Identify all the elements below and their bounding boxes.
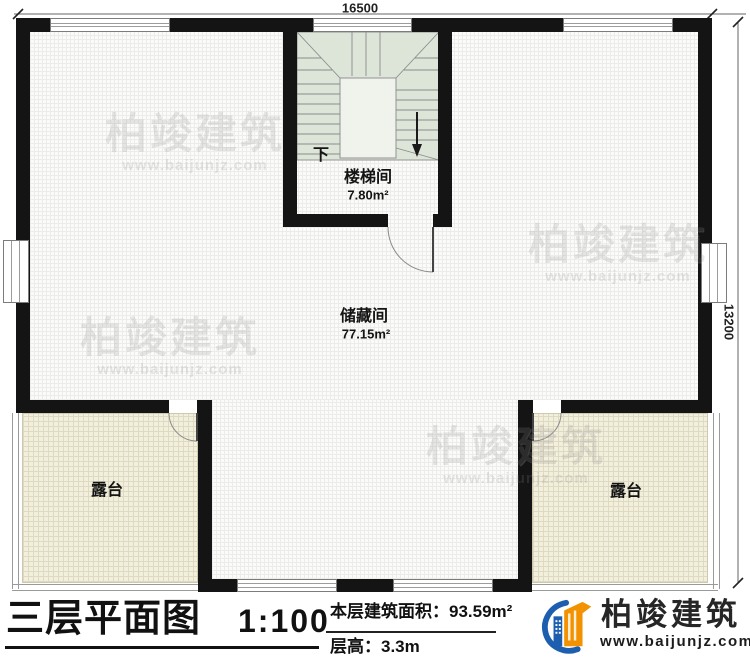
door-terrace-right bbox=[533, 413, 561, 441]
storage-area-label: 77.15m² bbox=[342, 328, 390, 341]
window-west bbox=[3, 240, 29, 303]
wall-south-east-segment bbox=[561, 400, 712, 413]
floor-height-value: 3.3m bbox=[381, 637, 420, 656]
window-south-2 bbox=[393, 579, 493, 592]
door-stairwell bbox=[388, 227, 433, 272]
wall-stairwell-east bbox=[438, 32, 452, 227]
floor-area-label: 本层建筑面积： bbox=[330, 602, 449, 621]
brand-logo-icon bbox=[540, 596, 598, 656]
wall-extension-west bbox=[198, 400, 212, 592]
terrace-right-label: 露台 bbox=[610, 484, 642, 500]
wall-extension-east bbox=[518, 400, 532, 592]
storage-name-label: 储藏间 bbox=[340, 309, 388, 325]
stair-direction-label: 下 bbox=[313, 148, 329, 164]
wall-stairwell-west bbox=[283, 32, 297, 227]
wall-stairwell-south-stub bbox=[433, 214, 452, 227]
window-east bbox=[701, 243, 727, 303]
floor-plan-page: 柏竣建筑 www.baijunjz.com 柏竣建筑 www.baijunjz.… bbox=[0, 0, 750, 660]
plan-scale: 1:100 bbox=[238, 605, 330, 637]
wall-extension-south-2 bbox=[337, 579, 393, 592]
window-north-1 bbox=[50, 18, 170, 32]
plan-title: 三层平面图 bbox=[6, 600, 201, 638]
terrace-left-label: 露台 bbox=[91, 483, 123, 499]
dimension-width: 16500 bbox=[342, 1, 378, 16]
dimension-height: 13200 bbox=[722, 304, 737, 340]
window-south-1 bbox=[237, 579, 337, 592]
wall-west bbox=[16, 18, 30, 413]
brand-url: www.baijunjz.com bbox=[600, 634, 750, 649]
wall-extension-south-1 bbox=[198, 579, 237, 592]
floor-height-row: 层高：3.3m bbox=[330, 638, 420, 655]
floor-area-row: 本层建筑面积：93.59m² bbox=[330, 603, 512, 620]
floor-height-label: 层高： bbox=[330, 637, 381, 656]
wall-stairwell-south bbox=[283, 214, 388, 227]
window-north-stairwell bbox=[313, 18, 412, 32]
plan-linework bbox=[0, 0, 750, 595]
wall-extension-south-3 bbox=[493, 579, 532, 592]
wall-east bbox=[698, 18, 712, 413]
window-north-2 bbox=[563, 18, 673, 32]
wall-south-west-segment bbox=[16, 400, 169, 413]
stairwell-name-label: 楼梯间 bbox=[344, 170, 392, 186]
stairwell-area-label: 7.80m² bbox=[347, 189, 388, 202]
floor-area-value: 93.59m² bbox=[449, 602, 512, 621]
brand-name: 柏竣建筑 bbox=[601, 599, 741, 630]
title-underline bbox=[5, 646, 319, 649]
door-terrace-left bbox=[169, 413, 197, 441]
area-underline bbox=[326, 631, 496, 633]
